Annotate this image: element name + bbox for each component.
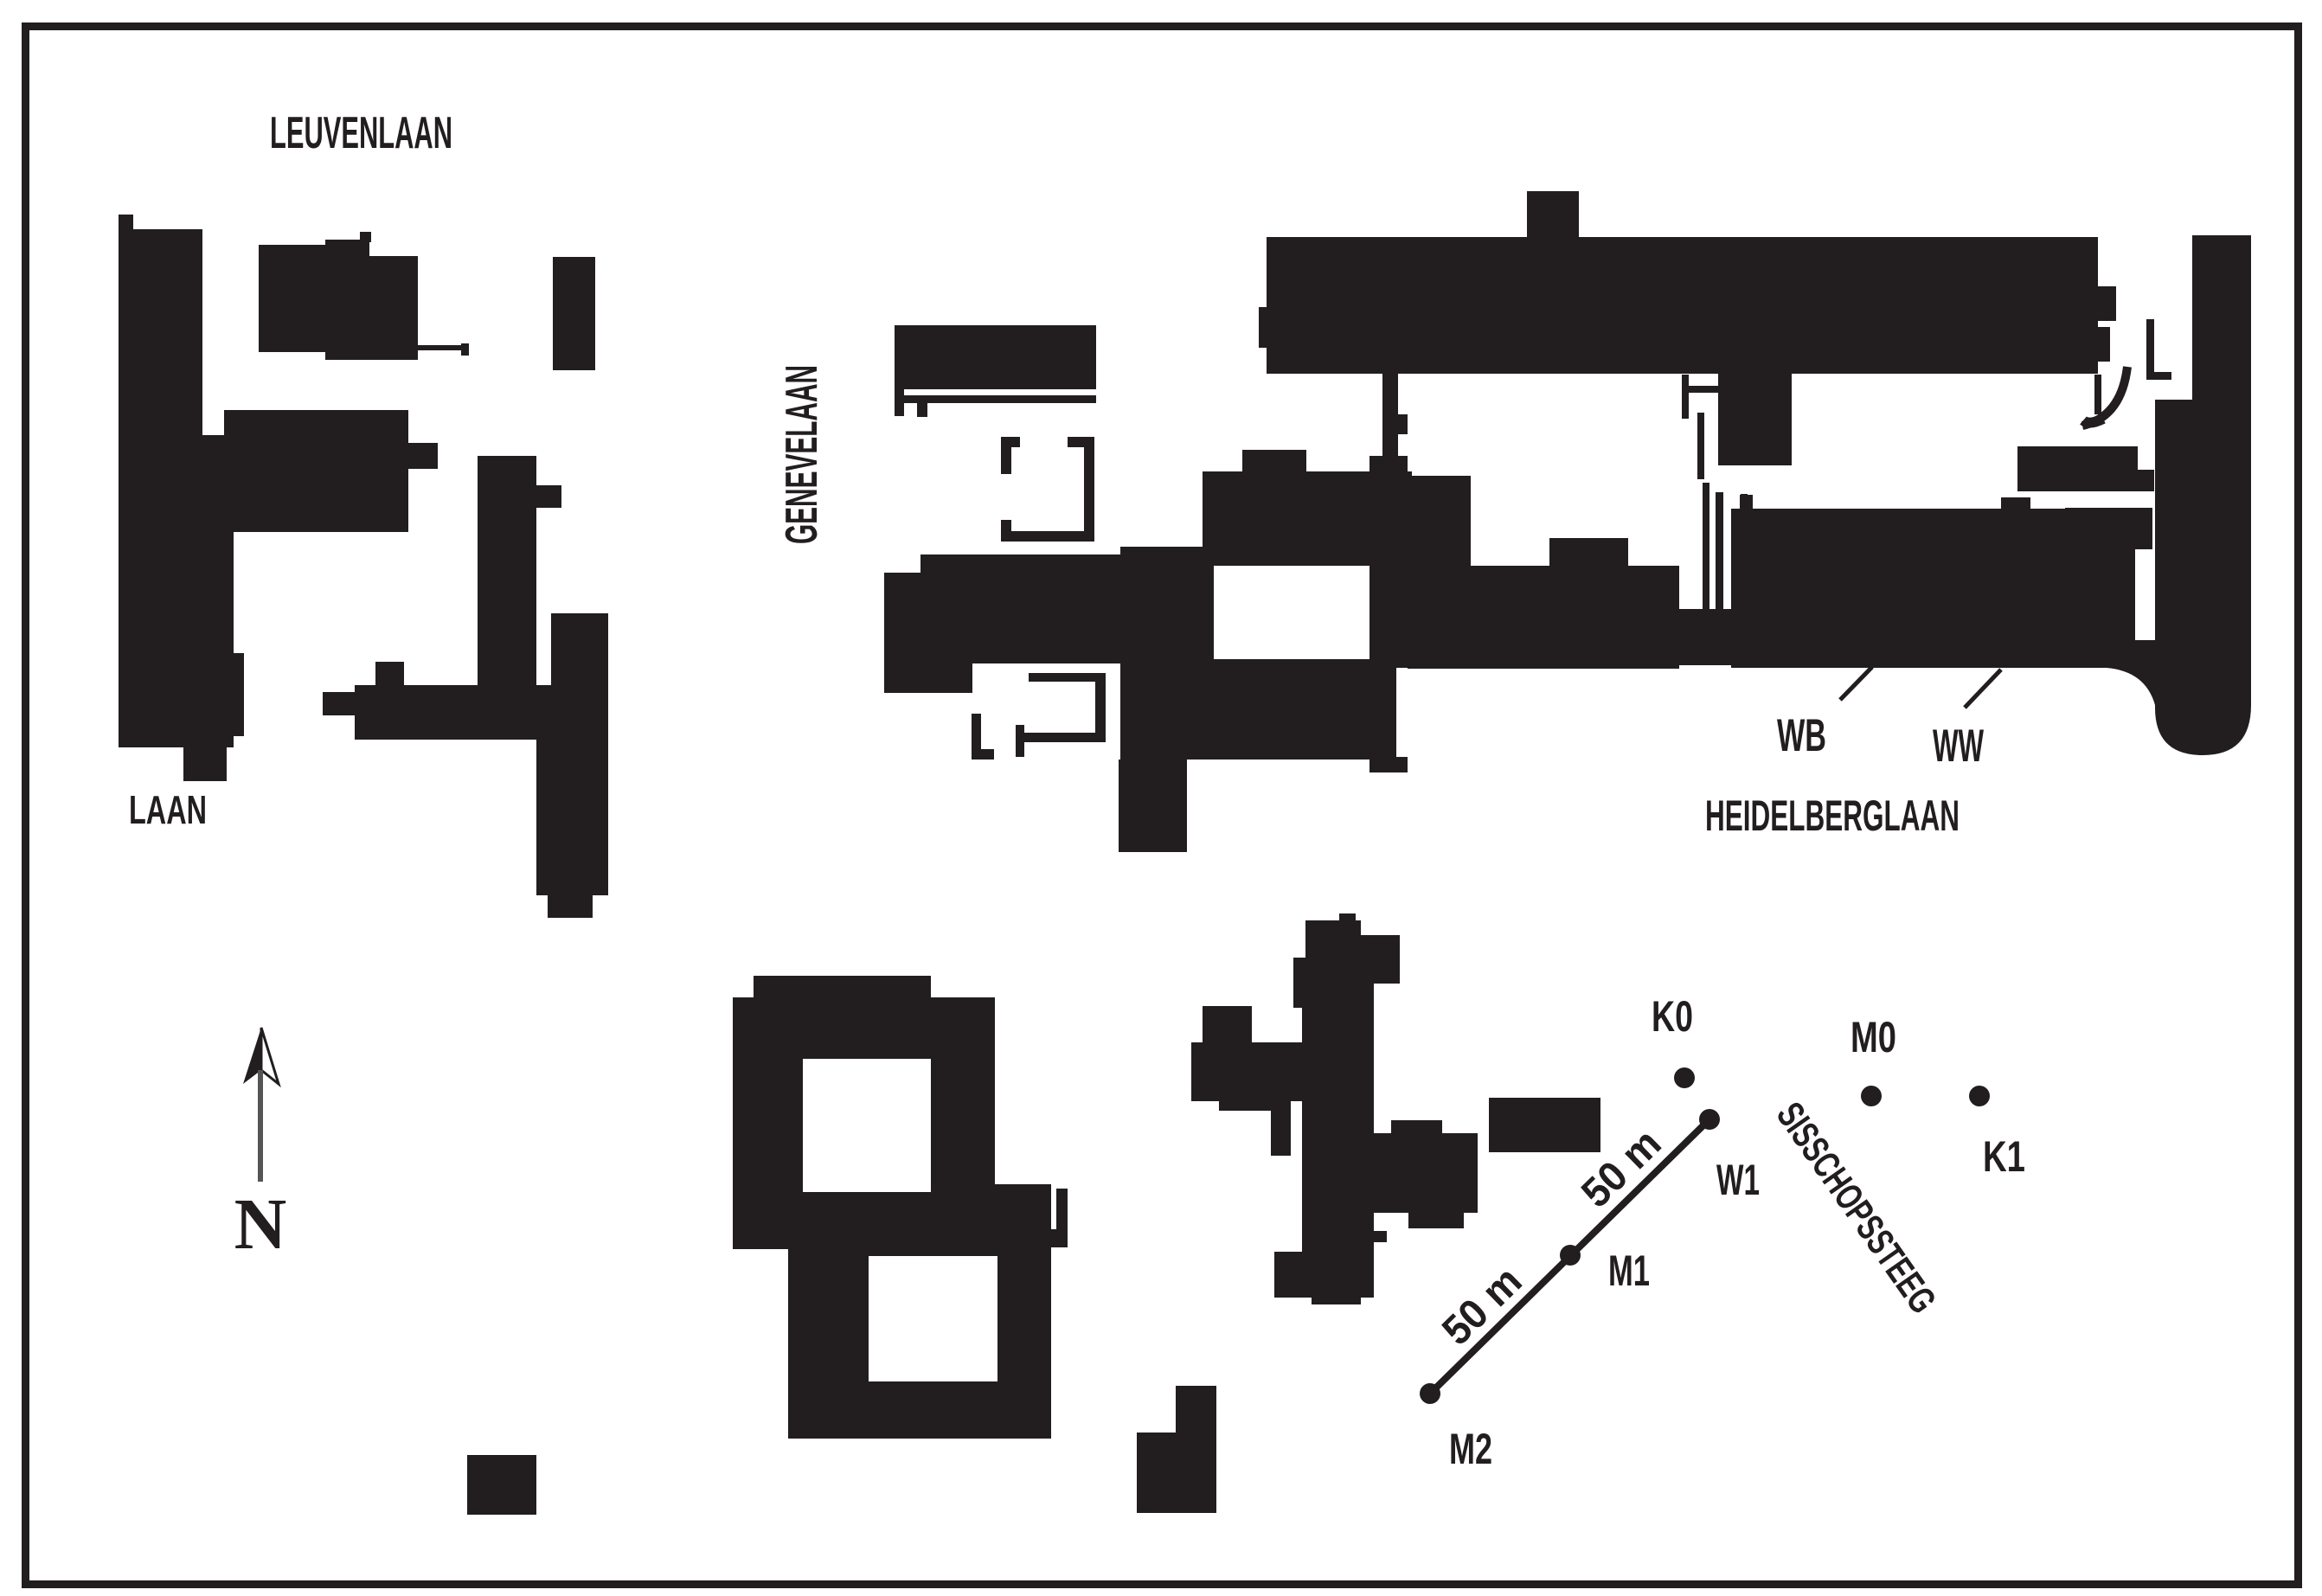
svg-text:WB: WB (1777, 710, 1826, 761)
svg-text:HEIDELBERGLAAN: HEIDELBERGLAAN (1705, 792, 1960, 840)
svg-text:W1: W1 (1716, 1156, 1760, 1204)
svg-text:K1: K1 (1983, 1132, 2025, 1181)
svg-text:LEUVENLAAN: LEUVENLAAN (270, 108, 452, 158)
svg-text:LAAN: LAAN (129, 787, 207, 832)
svg-text:K0: K0 (1652, 992, 1693, 1041)
svg-text:M1: M1 (1608, 1247, 1650, 1295)
svg-text:GENEVELAAN: GENEVELAAN (777, 365, 827, 544)
svg-text:N: N (234, 1184, 287, 1265)
svg-text:M0: M0 (1851, 1013, 1896, 1061)
svg-text:WW: WW (1933, 721, 1984, 772)
svg-text:M2: M2 (1449, 1425, 1492, 1473)
